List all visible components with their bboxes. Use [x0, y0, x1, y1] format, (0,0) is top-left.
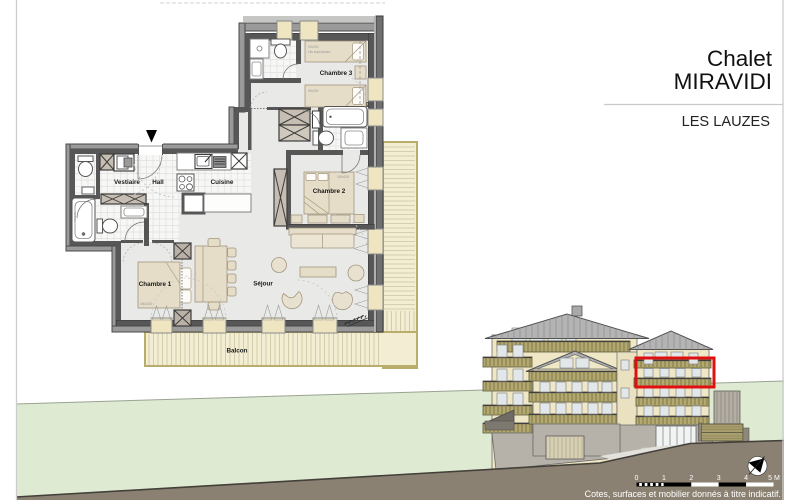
- svg-text:Hall: Hall: [152, 179, 164, 186]
- svg-text:Chalet: Chalet: [707, 46, 773, 71]
- svg-text:5 M: 5 M: [768, 475, 780, 482]
- svg-text:Chambre 3: Chambre 3: [320, 70, 353, 77]
- svg-text:1: 1: [662, 475, 666, 482]
- svg-text:70x170: 70x170: [73, 212, 77, 222]
- svg-text:Vestiaire: Vestiaire: [114, 179, 140, 186]
- svg-text:Lits superposés: Lits superposés: [308, 50, 331, 54]
- svg-text:3: 3: [717, 475, 721, 482]
- svg-text:4: 4: [744, 475, 748, 482]
- svg-text:Séjour: Séjour: [253, 281, 273, 288]
- svg-text:LES LAUZES: LES LAUZES: [682, 114, 771, 130]
- svg-text:90x200: 90x200: [308, 45, 319, 49]
- svg-text:Chambre 1: Chambre 1: [139, 281, 172, 288]
- svg-text:160x200: 160x200: [337, 175, 349, 179]
- svg-text:2: 2: [689, 475, 693, 482]
- svg-text:MIRAVIDI: MIRAVIDI: [674, 69, 772, 94]
- svg-text:Cuisine: Cuisine: [211, 179, 234, 186]
- svg-text:0: 0: [635, 475, 639, 482]
- svg-text:90x200: 90x200: [308, 89, 319, 93]
- svg-text:Chambre 2: Chambre 2: [313, 188, 346, 195]
- svg-text:Balcon: Balcon: [227, 348, 248, 355]
- svg-text:160x200: 160x200: [140, 302, 152, 306]
- svg-text:Cotes, surfaces et mobilier do: Cotes, surfaces et mobilier donnés à tit…: [585, 489, 781, 499]
